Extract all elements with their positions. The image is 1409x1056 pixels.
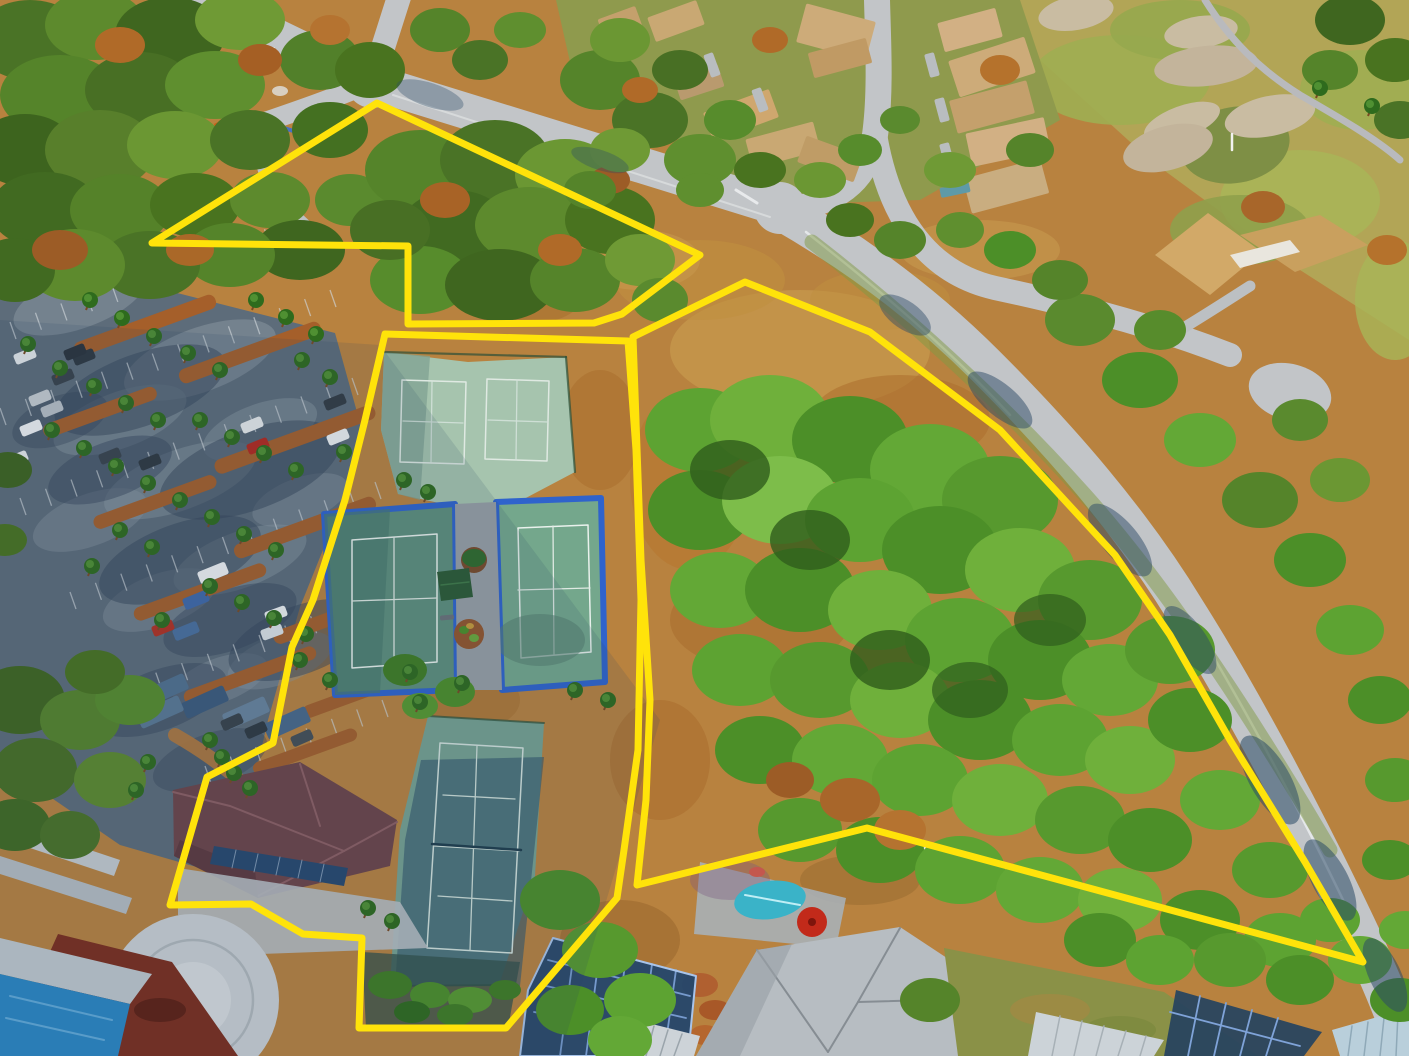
trees-roadside-east-12	[1134, 310, 1186, 350]
trees-neighborhood-4	[838, 134, 882, 166]
trees-road-east-upper-6	[734, 152, 786, 188]
trees-neighborhood-9	[880, 106, 920, 134]
trees-neighborhood-8	[752, 27, 788, 53]
east-woods-canopy-40	[690, 440, 770, 500]
palm-trees-frond-54	[1366, 100, 1374, 108]
trees-neighborhood-5	[924, 152, 976, 188]
trees-neighborhood-7	[980, 55, 1020, 85]
trees-road-east-upper-3	[590, 18, 650, 62]
trees-roadside-east-3	[1222, 472, 1298, 528]
forest-northwest-31	[494, 12, 546, 48]
trees-road-east-upper-7	[622, 77, 658, 103]
red-umbrella-hub	[808, 918, 816, 926]
trees-south-center-7	[1126, 935, 1194, 985]
trees-roadside-east-0	[1045, 294, 1115, 346]
palm-trees-frond-32	[250, 294, 258, 302]
palm-trees-frond-53	[1314, 82, 1322, 90]
pink-float	[749, 867, 765, 877]
east-woods-canopy-44	[1014, 594, 1086, 646]
white-rock	[272, 86, 288, 96]
palm-trees-frond-33	[280, 311, 288, 319]
trees-flag-parcel-13	[538, 234, 582, 266]
east-woods-canopy-42	[850, 630, 930, 690]
forest-northwest-14	[230, 172, 310, 228]
trees-roadside-east-2	[1164, 413, 1236, 467]
screenshot-root	[0, 0, 1409, 1056]
palm-trees-frond-34	[310, 328, 318, 336]
trees-roadside-east-15	[936, 212, 984, 248]
palm-trees-frond-1	[116, 312, 124, 320]
trees-roadside-east-6	[1348, 676, 1409, 724]
forest-northwest-28	[166, 234, 214, 266]
palm-trees-frond-0	[84, 294, 92, 302]
aerial-photo	[0, 0, 1409, 1056]
trees-south-center-8	[1194, 933, 1266, 987]
trees-golf-corner-2	[1302, 50, 1358, 90]
trees-roadside-east-5	[1316, 605, 1384, 655]
forest-northwest-23	[335, 42, 405, 98]
trees-roadside-east-8	[1310, 458, 1370, 502]
trees-roadside-east-19	[1367, 235, 1407, 265]
trees-neighborhood-2	[676, 173, 724, 207]
trees-flag-parcel-12	[420, 182, 470, 218]
trees-south-center-9	[1266, 955, 1334, 1005]
trees-roadside-east-13	[1032, 260, 1088, 300]
forest-northwest-26	[32, 230, 88, 270]
forest-northwest-30	[452, 40, 508, 80]
forest-northwest-27	[310, 15, 350, 45]
forest-northwest-24	[95, 27, 145, 63]
forest-northwest-25	[238, 44, 282, 76]
trees-road-east-upper-5	[704, 100, 756, 140]
trees-roadside-east-18	[1241, 191, 1285, 223]
trees-roadside-east-17	[826, 203, 874, 237]
trees-roadside-east-16	[874, 221, 926, 259]
forest-northwest-9	[127, 111, 223, 179]
trees-roadside-east-4	[1274, 533, 1346, 587]
east-woods-canopy-41	[770, 510, 850, 570]
trees-roadside-east-1	[1102, 352, 1178, 408]
trees-south-center-6	[1064, 913, 1136, 967]
east-woods-canopy-47	[766, 762, 814, 798]
east-woods-canopy-28	[952, 764, 1048, 836]
trees-south-center-5	[900, 978, 960, 1022]
trees-neighborhood-3	[794, 162, 846, 198]
east-woods-canopy-43	[932, 662, 1008, 718]
trees-road-east-upper-4	[652, 50, 708, 90]
trees-roadside-east-14	[984, 231, 1036, 269]
trees-roadside-east-9	[1272, 399, 1328, 441]
trees-neighborhood-6	[1006, 133, 1054, 167]
east-woods-canopy-30	[1108, 808, 1192, 872]
east-woods-canopy-45	[820, 778, 880, 822]
trees-flag-parcel-10	[350, 200, 430, 260]
